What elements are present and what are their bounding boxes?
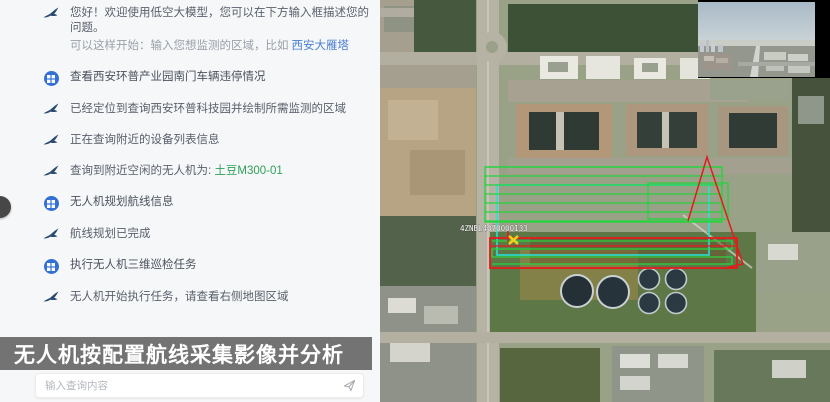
captured-imagery-strip xyxy=(530,239,726,264)
chat-message: 正在查询附近的设备列表信息 xyxy=(42,133,372,148)
chat-message-text: 正在查询附近的设备列表信息 xyxy=(70,133,220,148)
chat-message: 无人机开始执行任务，请查看右侧地图区域 xyxy=(42,290,372,305)
chat-message-list: 您好！欢迎使用低空大模型，您可以在下方输入框描述您的问题。 可以这样开始：输入您… xyxy=(42,6,372,321)
chat-message-text: 您好！欢迎使用低空大模型，您可以在下方输入框描述您的问题。 xyxy=(70,6,372,36)
paper-plane-icon xyxy=(343,379,356,392)
chat-message: 查询到附近空闲的无人机为: 土豆M300-01 xyxy=(42,164,372,179)
chat-message-text: 查看西安环普产业园南门车辆违停情况 xyxy=(70,70,266,86)
caption-text: 无人机按配置航线采集影像并分析 xyxy=(14,339,344,369)
message-icon-slot xyxy=(42,6,60,36)
chat-message: 航线规划已完成 xyxy=(42,227,372,242)
message-icon-slot xyxy=(42,102,60,117)
caption-bar: 无人机按配置航线采集影像并分析 xyxy=(0,337,372,370)
message-icon-slot xyxy=(42,39,60,54)
chat-message: 您好！欢迎使用低空大模型，您可以在下方输入框描述您的问题。 xyxy=(42,6,372,36)
bird-logo-icon xyxy=(43,228,59,240)
send-button[interactable] xyxy=(339,376,359,396)
message-icon-slot xyxy=(42,164,60,179)
bird-logo-icon xyxy=(43,103,59,115)
message-icon-slot xyxy=(42,290,60,305)
chat-message: 执行无人机三维巡检任务 xyxy=(42,258,372,274)
video-inset[interactable] xyxy=(698,0,830,78)
message-icon-slot xyxy=(42,70,60,86)
bird-logo-icon xyxy=(43,165,59,177)
drone-name: 土豆M300-01 xyxy=(214,165,282,177)
chat-message: 查看西安环普产业园南门车辆违停情况 xyxy=(42,70,372,86)
app-screen: 您好！欢迎使用低空大模型，您可以在下方输入框描述您的问题。 可以这样开始：输入您… xyxy=(0,0,830,402)
user-avatar-icon xyxy=(44,196,59,211)
bird-logo-icon xyxy=(43,291,59,303)
message-icon-slot xyxy=(42,258,60,274)
chat-message: 无人机规划航线信息 xyxy=(42,195,372,211)
chat-message-text: 无人机规划航线信息 xyxy=(70,195,174,211)
chat-message-text: 可以这样开始：输入您想监测的区域，比如西安大雁塔 xyxy=(70,39,349,54)
message-icon-slot xyxy=(42,227,60,242)
query-bar xyxy=(35,373,364,398)
bird-logo-icon xyxy=(43,7,59,19)
suggestion-link[interactable]: 西安大雁塔 xyxy=(292,40,350,52)
search-input[interactable] xyxy=(36,380,339,392)
bird-logo-icon xyxy=(43,134,59,146)
chat-message: 可以这样开始：输入您想监测的区域，比如西安大雁塔 xyxy=(42,39,372,54)
user-avatar-icon xyxy=(44,259,59,274)
chat-message-text: 执行无人机三维巡检任务 xyxy=(70,258,197,274)
chat-message: 已经定位到查询西安环普科技园并绘制所需监测的区域 xyxy=(42,102,372,117)
chat-message-text: 已经定位到查询西安环普科技园并绘制所需监测的区域 xyxy=(70,102,346,117)
user-avatar-icon xyxy=(44,71,59,86)
drone-id-label: 4ZNBL4070000133 xyxy=(460,224,528,233)
drone-camera-view-icon xyxy=(698,2,815,77)
message-icon-slot xyxy=(42,195,60,211)
chat-message-text: 航线规划已完成 xyxy=(70,227,151,242)
chat-message-text: 无人机开始执行任务，请查看右侧地图区域 xyxy=(70,290,289,305)
message-icon-slot xyxy=(42,133,60,148)
chat-message-text: 查询到附近空闲的无人机为: 土豆M300-01 xyxy=(70,164,283,179)
